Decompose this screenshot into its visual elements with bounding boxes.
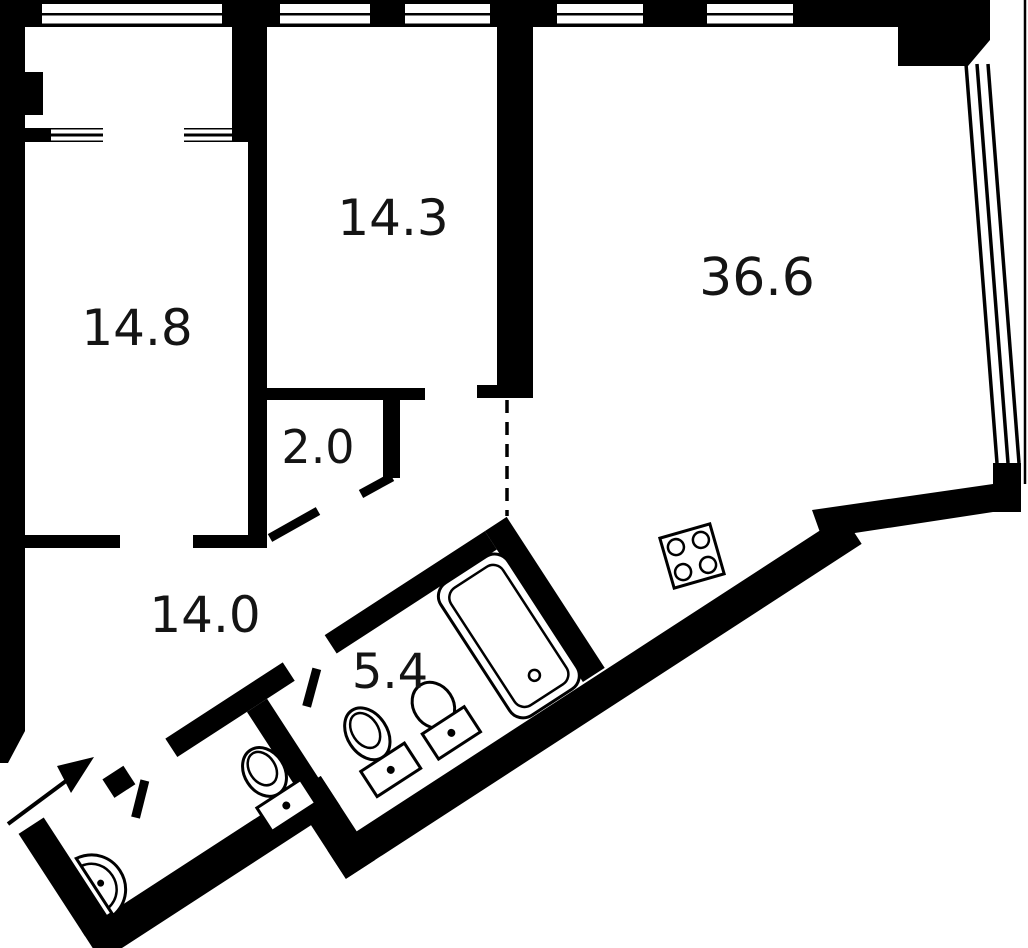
service-block xyxy=(19,363,862,948)
room-label-hallway: 14.0 xyxy=(149,586,260,644)
door-leaf-icon xyxy=(270,511,318,538)
wall-bedrooms-divider xyxy=(248,128,267,548)
wall-left-notch xyxy=(25,72,43,115)
wall-bedroom-left-bottom xyxy=(193,535,267,548)
room-label-bedroom-left: 14.8 xyxy=(81,299,192,357)
balcony-partition xyxy=(25,128,232,142)
wall-foot xyxy=(477,385,499,398)
door-leaf-icon xyxy=(361,477,392,494)
wall-stub xyxy=(102,766,135,798)
glazed-wall xyxy=(966,0,1025,484)
floor-plan-canvas: 14.8 14.3 36.6 2.0 14.0 5.4 xyxy=(0,0,1028,948)
wall-top-right-corner xyxy=(898,0,990,66)
wall-middle-living-divider xyxy=(497,0,533,398)
toilet-icon xyxy=(330,696,420,796)
door-leaf-icon xyxy=(292,669,330,707)
stove-icon xyxy=(660,524,724,588)
wall-glazing-end-block xyxy=(993,463,1021,512)
wall-left xyxy=(0,0,25,763)
room-label-living-room: 36.6 xyxy=(699,248,815,308)
wall-balcony-pier xyxy=(232,27,267,142)
interior-walls xyxy=(25,0,533,548)
wall-closet-right xyxy=(383,388,400,478)
room-label-bathroom: 5.4 xyxy=(352,644,428,700)
entrance-arrow-icon xyxy=(8,757,94,824)
wall-segment xyxy=(25,128,51,142)
wall-closet-top xyxy=(267,388,425,400)
room-label-bedroom-middle: 14.3 xyxy=(337,189,448,247)
floor-plan: 14.8 14.3 36.6 2.0 14.0 5.4 xyxy=(0,0,1028,948)
wall-bedroom-left-bottom xyxy=(25,535,120,548)
room-label-closet: 2.0 xyxy=(281,420,354,474)
